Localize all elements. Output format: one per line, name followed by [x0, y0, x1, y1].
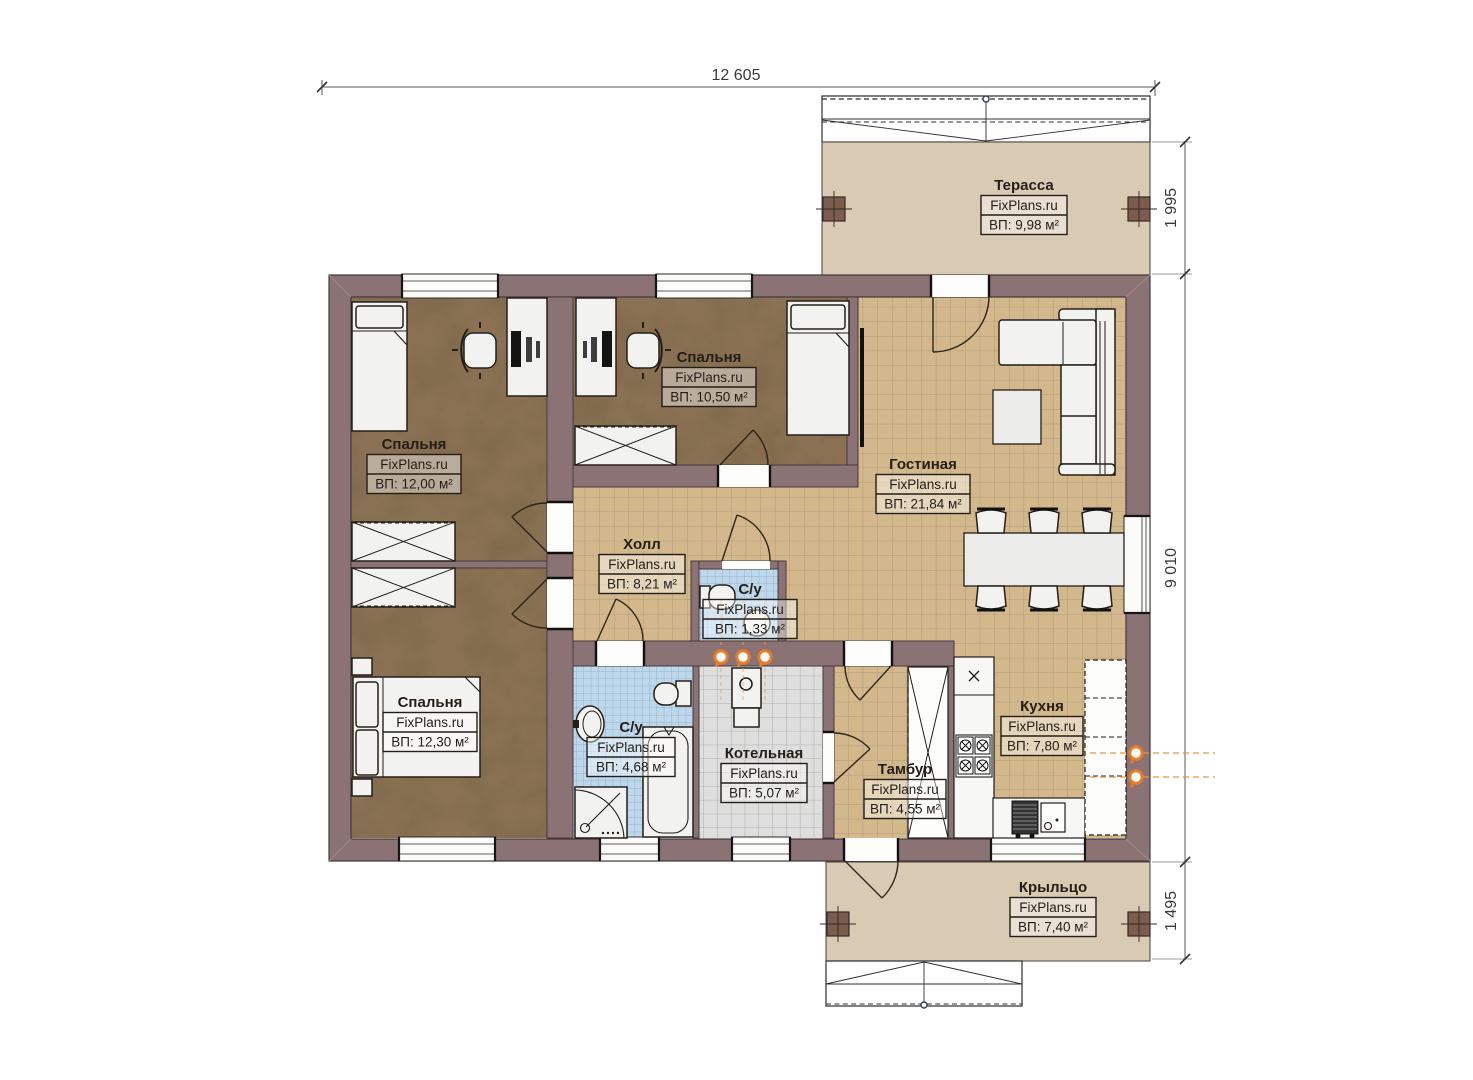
svg-text:Спальня: Спальня [382, 436, 447, 453]
svg-text:1 495: 1 495 [1163, 891, 1180, 931]
svg-text:FixPlans.ru: FixPlans.ru [380, 457, 448, 472]
svg-text:FixPlans.ru: FixPlans.ru [716, 602, 784, 617]
svg-text:ВП: 5,07 м²: ВП: 5,07 м² [729, 786, 800, 801]
svg-text:С/у: С/у [619, 719, 643, 736]
svg-text:FixPlans.ru: FixPlans.ru [597, 740, 665, 755]
svg-text:9 010: 9 010 [1163, 548, 1180, 588]
svg-text:ВП: 4,68 м²: ВП: 4,68 м² [596, 760, 667, 775]
svg-text:Гостиная: Гостиная [889, 456, 957, 473]
svg-text:12 605: 12 605 [712, 67, 761, 84]
svg-text:ВП: 1,33 м²: ВП: 1,33 м² [715, 622, 786, 637]
svg-text:Тамбур: Тамбур [878, 761, 932, 778]
svg-text:ВП: 21,84 м²: ВП: 21,84 м² [884, 497, 962, 512]
svg-text:FixPlans.ru: FixPlans.ru [990, 198, 1058, 213]
svg-text:ВП: 12,00 м²: ВП: 12,00 м² [375, 477, 453, 492]
svg-text:Котельная: Котельная [725, 745, 804, 762]
svg-text:FixPlans.ru: FixPlans.ru [1019, 900, 1087, 915]
svg-text:Крыльцо: Крыльцо [1019, 879, 1087, 896]
svg-text:ВП: 8,21 м²: ВП: 8,21 м² [607, 577, 678, 592]
svg-text:Спальня: Спальня [398, 694, 463, 711]
svg-text:FixPlans.ru: FixPlans.ru [396, 715, 464, 730]
svg-text:ВП: 7,80 м²: ВП: 7,80 м² [1007, 739, 1078, 754]
svg-text:FixPlans.ru: FixPlans.ru [608, 557, 676, 572]
svg-text:ВП: 9,98 м²: ВП: 9,98 м² [989, 218, 1060, 233]
svg-text:FixPlans.ru: FixPlans.ru [730, 766, 798, 781]
svg-text:FixPlans.ru: FixPlans.ru [889, 477, 957, 492]
svg-text:С/у: С/у [738, 581, 762, 598]
svg-text:ВП: 7,40 м²: ВП: 7,40 м² [1018, 920, 1089, 935]
svg-text:ВП: 10,50 м²: ВП: 10,50 м² [670, 390, 748, 405]
svg-text:ВП: 4,55 м²: ВП: 4,55 м² [870, 802, 941, 817]
svg-text:Спальня: Спальня [677, 349, 742, 366]
svg-text:FixPlans.ru: FixPlans.ru [871, 782, 939, 797]
svg-text:Холл: Холл [623, 536, 661, 553]
svg-text:1 995: 1 995 [1163, 188, 1180, 228]
svg-text:Терасса: Терасса [994, 177, 1054, 194]
svg-text:ВП: 12,30 м²: ВП: 12,30 м² [391, 735, 469, 750]
svg-text:Кухня: Кухня [1020, 698, 1064, 715]
svg-text:FixPlans.ru: FixPlans.ru [1008, 719, 1076, 734]
svg-text:FixPlans.ru: FixPlans.ru [675, 370, 743, 385]
